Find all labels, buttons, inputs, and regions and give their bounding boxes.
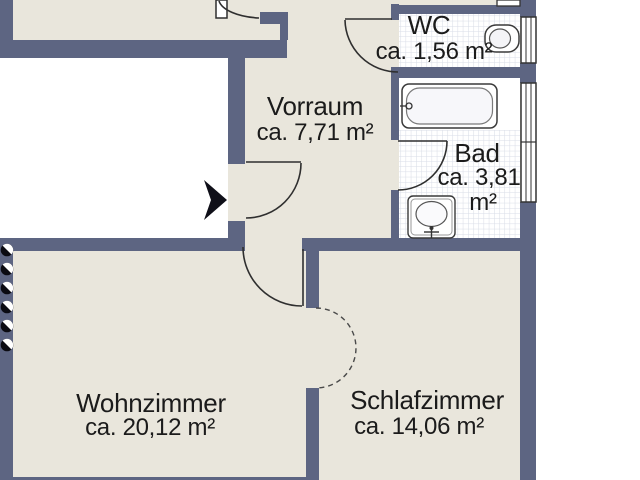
floor-plan: Vorraum ca. 7,71 m² WC ca. 1,56 m² Bad c… [0,0,640,480]
window-bad [521,83,536,202]
room-label-vorraum: Vorraum [267,93,363,119]
room-label-wc: WC [408,12,451,38]
duct-shaft [497,0,520,6]
wall-vorraum-left-upper [228,58,245,164]
wall-right-mid [520,63,536,83]
room-label-bad: Bad [454,140,499,166]
radiator-segment [1,301,14,314]
room-area-vorraum: ca. 7,71 m² [257,121,374,145]
exterior-left [0,57,228,238]
room-area-bad-line1: ca. 3,81 [438,166,521,190]
wall-bad-left-upper [391,78,399,140]
wall-right-top [520,0,536,17]
bathtub-icon [400,84,497,128]
window-wc [521,17,536,63]
room-area-bad-line2: m² [469,191,496,215]
wall-divider-lower [306,388,319,480]
sink-icon [408,196,455,238]
wall-niche-side [280,12,288,40]
wall-right-lower [520,202,536,480]
wall-vorraum-left-lower [228,221,245,238]
radiator-segment [1,339,14,352]
radiator-segment [1,263,14,276]
room-area-schlafzimmer: ca. 14,06 m² [354,415,484,439]
wall-wc-bottom [391,67,520,78]
radiator-segment [1,282,14,295]
room-area-wohnzimmer: ca. 20,12 m² [85,416,215,440]
room-label-wohnzimmer: Wohnzimmer [76,390,226,416]
radiator-segment [1,244,14,257]
room-label-schlafzimmer: Schlafzimmer [350,387,504,413]
windows [521,17,536,202]
wall-mid-left [0,238,245,251]
wall-bad-left-lower [391,190,399,238]
room-area-wc: ca. 1,56 m² [376,40,493,64]
wall-divider-upper [306,251,319,308]
radiator-segment [1,320,14,333]
wall-mid-right [302,238,536,251]
wall-top-room-bottom [0,40,287,58]
